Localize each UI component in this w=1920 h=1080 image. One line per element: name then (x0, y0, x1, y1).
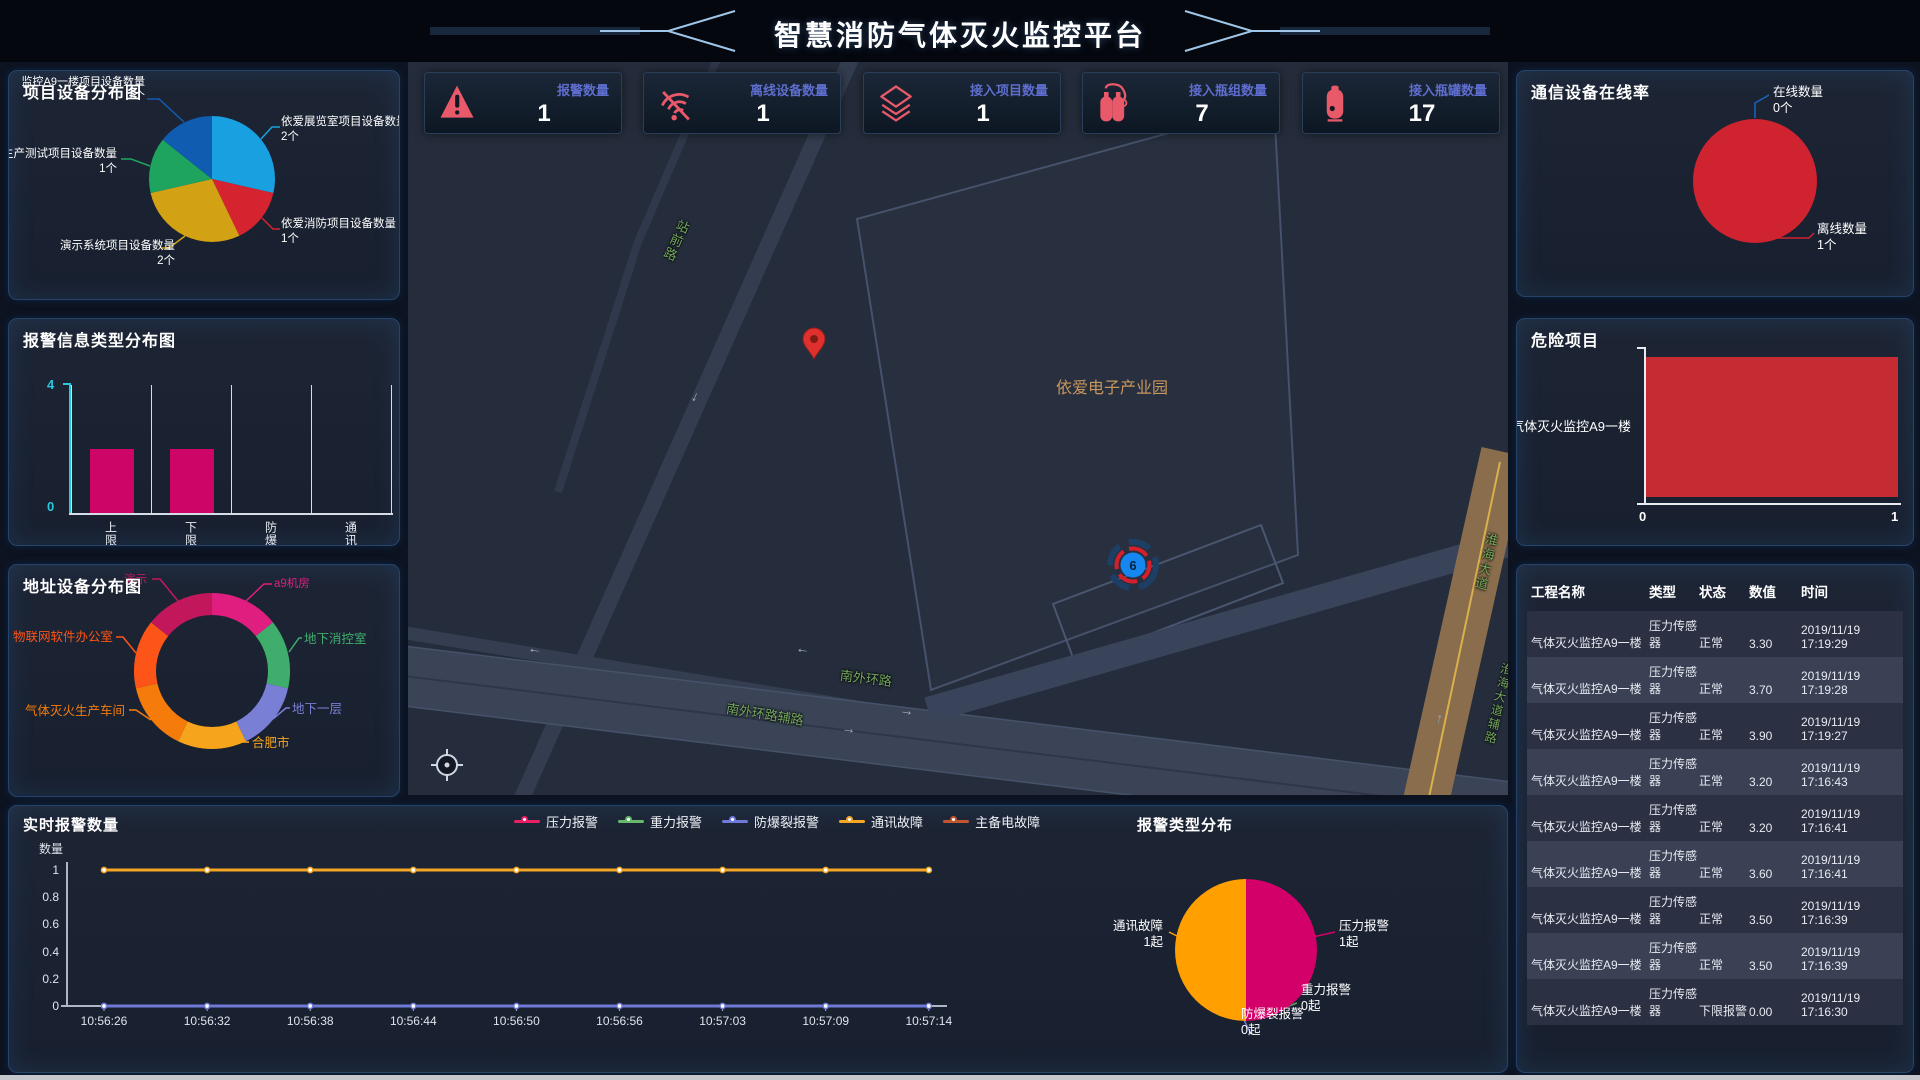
stat-value: 1 (537, 100, 550, 128)
bar-slot[interactable] (312, 385, 392, 513)
wifi-off-icon (654, 81, 698, 125)
donut-label: 物联网软件办公室 (13, 629, 113, 645)
stat-label: 离线设备数量 (750, 80, 828, 99)
layers-icon (874, 81, 918, 125)
legend-marker-icon (943, 816, 969, 827)
donut-label: 地下一层 (292, 701, 342, 717)
bar-chart[interactable] (71, 385, 392, 513)
header-bar: 智慧消防气体灭火监控平台 (0, 0, 1920, 62)
map-cluster-marker[interactable]: 6 (1103, 535, 1163, 595)
online-rate-pie-chart[interactable] (1517, 71, 1914, 297)
bar-category-label: 下限报警 (183, 521, 200, 546)
panel-title: 危险项目 (1531, 327, 1599, 351)
stat-value: 1 (976, 100, 989, 128)
pie-label: 依爱消防项目设备数量1个 (281, 217, 396, 247)
legend-marker-icon (722, 816, 748, 827)
panel-title: 项目设备分布图 (23, 79, 142, 103)
stat-value: 1 (756, 100, 769, 128)
stat-label: 接入瓶组数量 (1189, 80, 1267, 99)
pie-label: 重力报警0起 (1301, 982, 1351, 1015)
pie-label: 通讯故障1起 (1113, 918, 1163, 951)
chart-legend: 压力报警重力报警防爆裂报警通讯故障主备电故障 (514, 812, 1040, 831)
bar[interactable] (170, 449, 214, 513)
x-tick-label: 0 (1639, 509, 1646, 524)
map-roads-layer (408, 62, 1508, 795)
address-donut-chart[interactable] (9, 565, 400, 797)
donut-label: a9机房 (274, 577, 310, 592)
stat-value: 17 (1409, 100, 1436, 128)
tank-icon (1313, 81, 1357, 125)
panel-title: 地址设备分布图 (23, 573, 142, 597)
donut-label: 合肥市 (252, 735, 290, 751)
table-body: 气体灭火监控A9一楼压力传感器正常3.302019/11/19 17:19:29… (1527, 611, 1903, 1025)
x-tick-label: 1 (1891, 509, 1898, 524)
table-header: 工程名称类型状态数值时间 (1527, 575, 1903, 611)
pie-label: 离线数量1个 (1817, 221, 1867, 254)
stat-label: 报警数量 (557, 80, 609, 99)
bar-category-label: 上限报警 (103, 521, 120, 546)
legend-marker-icon (514, 816, 540, 827)
road-arrow-icon: ← (795, 639, 811, 657)
stat-card-alarms: 报警数量1 (424, 72, 622, 134)
locate-control-icon[interactable] (430, 748, 464, 782)
pie-label: 生产测试项目设备数量1个 (8, 147, 117, 177)
legend-item[interactable]: 重力报警 (618, 812, 702, 831)
map-canvas[interactable]: 南外环路 南外环路辅路 站前路 站前路 淮海大道 淮海大道辅路 依爱电子产业园 … (408, 62, 1508, 795)
table-row: 气体灭火监控A9一楼压力传感器正常3.902019/11/19 17:19:27 (1527, 703, 1903, 749)
panel-realtime-alarms: 实时报警数量 报警类型分布 压力报警重力报警防爆裂报警通讯故障主备电故障 数量 … (8, 805, 1508, 1073)
legend-item[interactable]: 防爆裂报警 (722, 812, 819, 831)
legend-item[interactable]: 通讯故障 (839, 812, 923, 831)
stat-label: 接入项目数量 (970, 80, 1048, 99)
table-row: 气体灭火监控A9一楼压力传感器正常3.502019/11/19 17:16:39 (1527, 933, 1903, 979)
table-row: 气体灭火监控A9一楼压力传感器正常3.202019/11/19 17:16:41 (1527, 795, 1903, 841)
bar-category-label: 气体灭火监控A9一楼 (1516, 419, 1631, 436)
bar-category-label: 通讯故障 (343, 521, 360, 546)
panel-danger-projects: 危险项目 气体灭火监控A9一楼 0 1 (1516, 318, 1914, 546)
alarm-warning-icon (435, 81, 479, 125)
pie-label: 压力报警1起 (1339, 918, 1389, 951)
stat-card-tanks: 接入瓶罐数量17 (1302, 72, 1500, 134)
panel-address-donut: 地址设备分布图 演示 a9机房 地下消控室 地下一层 合肥市 气体灭火生产车间 … (8, 564, 400, 797)
table-row: 气体灭火监控A9一楼压力传感器正常3.502019/11/19 17:16:39 (1527, 887, 1903, 933)
pie-slice[interactable] (1693, 119, 1817, 243)
stat-card-cylinder-groups: 接入瓶组数量7 (1082, 72, 1280, 134)
pie-slice[interactable] (178, 721, 246, 749)
bar[interactable] (90, 449, 134, 513)
donut-label: 气体灭火生产车间 (25, 703, 125, 719)
pie-slice[interactable] (151, 593, 212, 636)
table-row: 气体灭火监控A9一楼压力传感器正常3.202019/11/19 17:16:43 (1527, 749, 1903, 795)
road-arrow-icon: → (899, 701, 915, 719)
legend-marker-icon (839, 816, 865, 827)
stat-label: 接入瓶罐数量 (1409, 80, 1487, 99)
panel-title: 通信设备在线率 (1531, 79, 1650, 103)
stat-value: 7 (1195, 100, 1208, 128)
bar-slot[interactable] (72, 385, 152, 513)
pie-slice[interactable] (134, 622, 168, 688)
panel-alarm-type-bar: 报警信息类型分布图 4 0 上限报警下限报警防爆裂通讯故障 (8, 318, 400, 546)
pie-label: 防爆裂报警0起 (1241, 1006, 1304, 1039)
panel-project-device-pie: 项目设备分布图 监控A9一楼项目设备数量1个 依爱展览室项目设备数量2个 生产测… (8, 70, 400, 300)
cylinder-group-icon (1093, 81, 1137, 125)
x-axis (1637, 503, 1901, 505)
road-arrow-icon: → (841, 719, 857, 737)
pie-slice[interactable] (136, 683, 188, 741)
pie-slice[interactable] (1175, 879, 1246, 1021)
cluster-count-label: 6 (1129, 558, 1136, 573)
pie-label: 演示系统项目设备数量2个 (60, 239, 175, 269)
legend-item[interactable]: 压力报警 (514, 812, 598, 831)
pie-slice[interactable] (212, 593, 273, 636)
panel-device-table: 工程名称类型状态数值时间 气体灭火监控A9一楼压力传感器正常3.302019/1… (1516, 564, 1914, 1073)
legend-marker-icon (618, 816, 644, 827)
horizontal-scrollbar[interactable] (0, 1075, 1920, 1080)
donut-label: 地下消控室 (304, 631, 367, 647)
panel-title: 报警信息类型分布图 (23, 327, 176, 351)
pie-slice[interactable] (256, 622, 290, 688)
bar-category-label: 防爆裂 (263, 521, 280, 546)
map-park-label: 依爱电子产业园 (1056, 374, 1168, 398)
y-max-label: 4 (47, 377, 54, 392)
map-pin-icon[interactable] (796, 324, 836, 364)
bar-slot[interactable] (232, 385, 312, 513)
pie-label: 依爱展览室项目设备数量2个 (281, 115, 400, 145)
table-row: 气体灭火监控A9一楼压力传感器正常3.602019/11/19 17:16:41 (1527, 841, 1903, 887)
stat-card-projects: 接入项目数量1 (863, 72, 1061, 134)
panel-title: 实时报警数量 (23, 814, 119, 835)
page-title: 智慧消防气体灭火监控平台 (0, 14, 1920, 54)
x-axis (69, 513, 393, 515)
table-row: 气体灭火监控A9一楼压力传感器正常3.702019/11/19 17:19:28 (1527, 657, 1903, 703)
table-row: 气体灭火监控A9一楼压力传感器正常3.302019/11/19 17:19:29 (1527, 611, 1903, 657)
stat-card-offline-devices: 离线设备数量1 (643, 72, 841, 134)
bar-category-labels: 上限报警下限报警防爆裂通讯故障 (71, 521, 391, 546)
panel-online-rate: 通信设备在线率 在线数量0个 离线数量1个 (1516, 70, 1914, 297)
dashboard: 智慧消防气体灭火监控平台 南外环路 南外环路辅路 站前路 站前路 淮海 (0, 0, 1920, 1080)
road-arrow-icon: ← (527, 639, 543, 657)
pie-label: 在线数量0个 (1773, 84, 1823, 117)
y-min-label: 0 (47, 499, 54, 514)
device-table: 工程名称类型状态数值时间 气体灭火监控A9一楼压力传感器正常3.302019/1… (1527, 575, 1903, 1025)
table-row: 气体灭火监控A9一楼压力传感器下限报警0.002019/11/19 17:16:… (1527, 979, 1903, 1025)
bar-slot[interactable] (152, 385, 232, 513)
legend-item[interactable]: 主备电故障 (943, 812, 1040, 831)
danger-bar[interactable] (1646, 357, 1898, 497)
